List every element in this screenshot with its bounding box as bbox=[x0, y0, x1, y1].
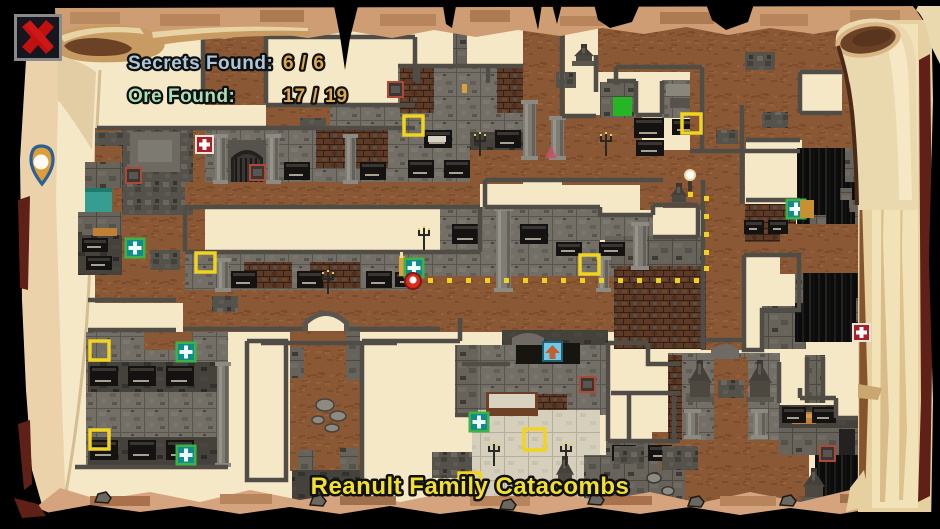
svg-text:Secrets Found:: Secrets Found: bbox=[128, 53, 273, 74]
svg-text:17 / 19: 17 / 19 bbox=[283, 86, 348, 107]
svg-text:Reanult Family Catacombs: Reanult Family Catacombs bbox=[311, 473, 630, 500]
svg-text:Ore Found:: Ore Found: bbox=[128, 86, 235, 107]
svg-text:6 / 6: 6 / 6 bbox=[283, 53, 325, 74]
